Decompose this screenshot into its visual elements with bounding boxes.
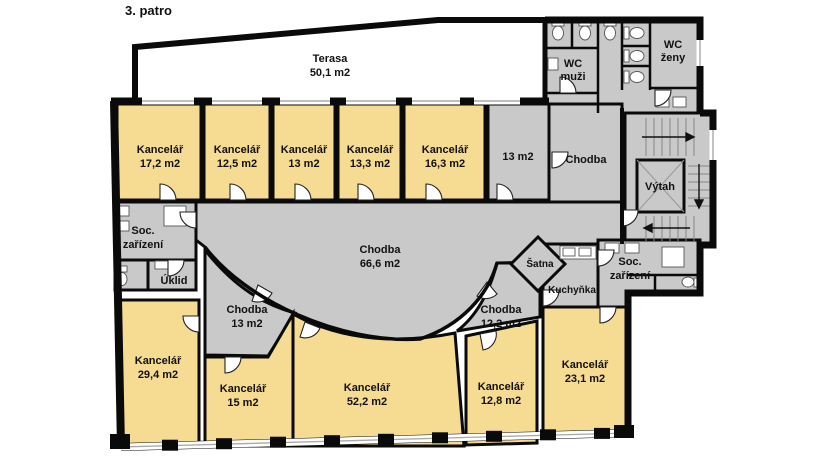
label-kancelar-12-5-name: Kancelář (214, 144, 261, 156)
label-kancelar-13-name: Kancelář (281, 144, 328, 156)
label-kancelar-13-3-area: 13,3 m2 (350, 158, 390, 170)
label-kancelar-23-1-name: Kancelář (562, 359, 609, 371)
label-chodba-hlavni-area: 66,6 m2 (360, 258, 400, 270)
label-soc-right-1: Soc. (618, 256, 641, 268)
label-kancelar-17-2-area: 17,2 m2 (140, 158, 180, 170)
label-kancelar-17-2-name: Kancelář (137, 144, 184, 156)
label-kancelar-23-1-area: 23,1 m2 (565, 373, 605, 385)
label-kancelar-52-2-name: Kancelář (344, 382, 391, 394)
label-mistnost-13: 13 m2 (502, 151, 533, 163)
label-kancelar-13-3-name: Kancelář (347, 144, 394, 156)
label-kancelar-13-area: 13 m2 (288, 158, 319, 170)
label-terasa-area: 50,1 m2 (310, 67, 350, 79)
label-soc-left-2: zařízení (123, 239, 164, 251)
label-wc-zeny-1: WC (664, 39, 682, 51)
label-terasa-name: Terasa (313, 53, 349, 65)
label-kancelar-16-3-name: Kancelář (422, 144, 469, 156)
floor-plan-drawing: 3. patro Terasa 50,1 m2 Kancelář 17,2 m2… (0, 0, 832, 468)
label-chodba-hlavni-name: Chodba (360, 244, 402, 256)
label-uklid: Úklid (161, 274, 188, 287)
label-kancelar-16-3-area: 16,3 m2 (425, 158, 465, 170)
label-chodba-12-2-name: Chodba (481, 304, 523, 316)
label-kancelar-12-8-area: 12,8 m2 (481, 395, 521, 407)
label-kancelar-29-4-area: 29,4 m2 (138, 369, 178, 381)
label-chodba-horni: Chodba (566, 154, 608, 166)
label-kancelar-52-2-area: 52,2 m2 (347, 396, 387, 408)
label-kancelar-12-5-area: 12,5 m2 (217, 158, 257, 170)
label-kuchynka: Kuchyňka (548, 285, 596, 296)
label-vytah: Výtah (645, 181, 675, 193)
label-soc-left-1: Soc. (131, 225, 154, 237)
label-kancelar-12-8-name: Kancelář (478, 381, 525, 393)
label-wc-muzi-2: muži (560, 71, 585, 83)
label-wc-muzi-1: WC (564, 58, 582, 70)
label-kancelar-29-4-name: Kancelář (135, 355, 182, 367)
label-kancelar-15-name: Kancelář (220, 383, 267, 395)
label-wc-zeny-2: ženy (661, 52, 686, 64)
page-title: 3. patro (125, 3, 172, 18)
label-satna: Šatna (526, 257, 554, 270)
label-chodba-13-area: 13 m2 (231, 318, 262, 330)
label-soc-right-2: zařízení (610, 270, 651, 282)
label-chodba-12-2-area: 12,2 m2 (481, 318, 521, 330)
floor-plan-page: 3. patro Terasa 50,1 m2 Kancelář 17,2 m2… (0, 0, 832, 468)
label-chodba-13-name: Chodba (227, 304, 269, 316)
label-kancelar-15-area: 15 m2 (227, 397, 258, 409)
